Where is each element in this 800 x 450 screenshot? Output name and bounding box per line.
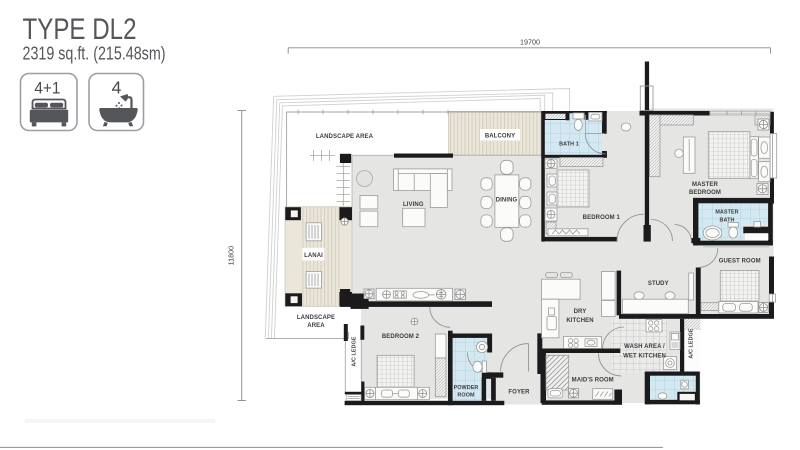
- svg-text:4+1: 4+1: [34, 79, 60, 98]
- svg-text:A/C LEDGE: A/C LEDGE: [352, 336, 358, 367]
- svg-text:MASTER: MASTER: [715, 209, 738, 215]
- svg-text:AREA: AREA: [307, 323, 325, 329]
- svg-text:DRY: DRY: [574, 309, 587, 315]
- svg-text:LANDSCAPE: LANDSCAPE: [297, 315, 335, 321]
- svg-text:BEDROOM: BEDROOM: [689, 190, 721, 196]
- svg-text:POWDER: POWDER: [454, 385, 479, 391]
- svg-text:FOYER: FOYER: [508, 390, 530, 396]
- svg-text:BATH 1: BATH 1: [559, 141, 579, 147]
- svg-text:WASH AREA /: WASH AREA /: [624, 344, 665, 350]
- svg-text:19700: 19700: [520, 37, 540, 46]
- svg-text:ROOM: ROOM: [457, 392, 475, 398]
- svg-text:LIVING: LIVING: [403, 202, 424, 208]
- svg-text:BALCONY: BALCONY: [485, 134, 515, 140]
- svg-text:LANAI: LANAI: [304, 253, 323, 259]
- svg-text:STUDY: STUDY: [648, 281, 669, 287]
- svg-text:DINING: DINING: [496, 197, 518, 203]
- svg-text:11800: 11800: [227, 246, 236, 265]
- svg-text:KITCHEN: KITCHEN: [566, 318, 593, 324]
- svg-text:LANDSCAPE AREA: LANDSCAPE AREA: [316, 134, 374, 140]
- svg-text:GUEST ROOM: GUEST ROOM: [719, 258, 761, 264]
- svg-text:A/C LEDGE: A/C LEDGE: [688, 328, 694, 359]
- svg-text:4: 4: [112, 78, 122, 98]
- svg-text:2319 sq.ft. (215.48sm): 2319 sq.ft. (215.48sm): [23, 43, 166, 64]
- svg-text:BATH: BATH: [720, 217, 735, 223]
- svg-text:WET KITCHEN: WET KITCHEN: [623, 354, 666, 360]
- svg-text:MASTER: MASTER: [692, 182, 718, 188]
- svg-text:MAID'S ROOM: MAID'S ROOM: [572, 377, 614, 383]
- svg-text:BEDROOM 2: BEDROOM 2: [382, 334, 420, 340]
- svg-text:TYPE DL2: TYPE DL2: [23, 13, 137, 46]
- svg-text:BEDROOM 1: BEDROOM 1: [583, 215, 621, 221]
